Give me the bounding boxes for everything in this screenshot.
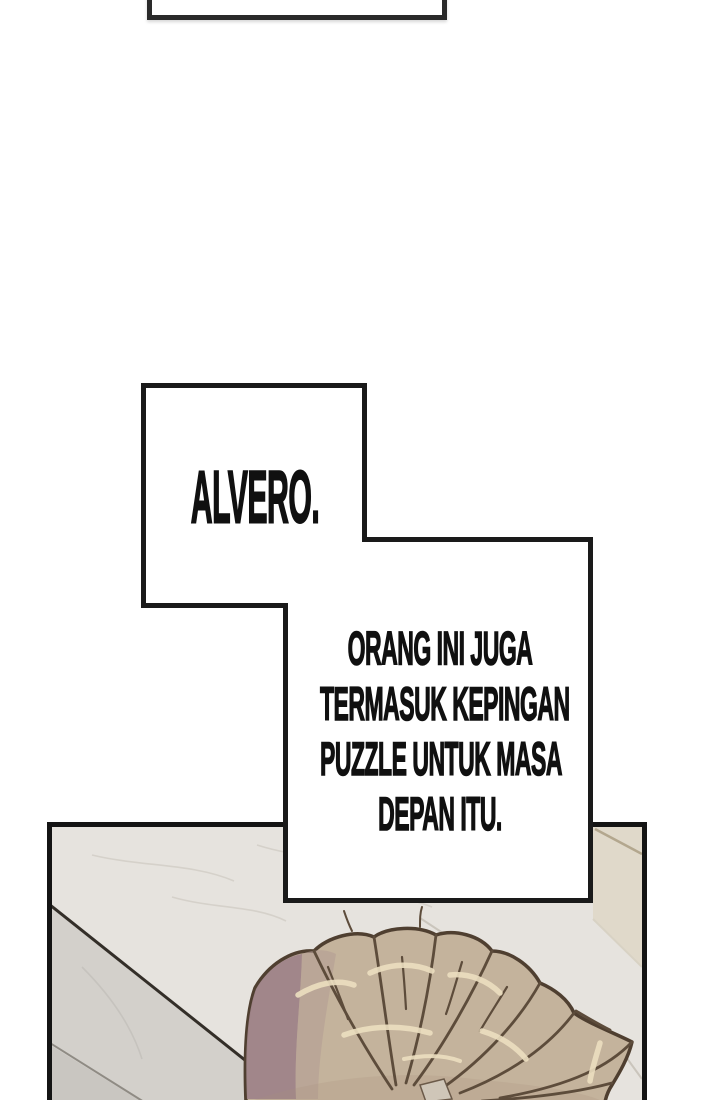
puzzle-line-4: DEPAN ITU. bbox=[320, 786, 560, 841]
puzzle-line-2: TERMASUK KEPINGAN bbox=[320, 676, 560, 731]
puzzle-text: ORANG INI JUGA TERMASUK KEPINGAN PUZZLE … bbox=[320, 621, 560, 841]
comic-page: ALVERO. ORANG INI JUGA TERMASUK KEPINGAN… bbox=[0, 0, 720, 1100]
top-speech-box bbox=[147, 0, 447, 20]
alvero-text: ALVERO. bbox=[174, 459, 336, 535]
puzzle-line-3: PUZZLE UNTUK MASA bbox=[320, 731, 560, 786]
puzzle-line-1: ORANG INI JUGA bbox=[320, 621, 560, 676]
